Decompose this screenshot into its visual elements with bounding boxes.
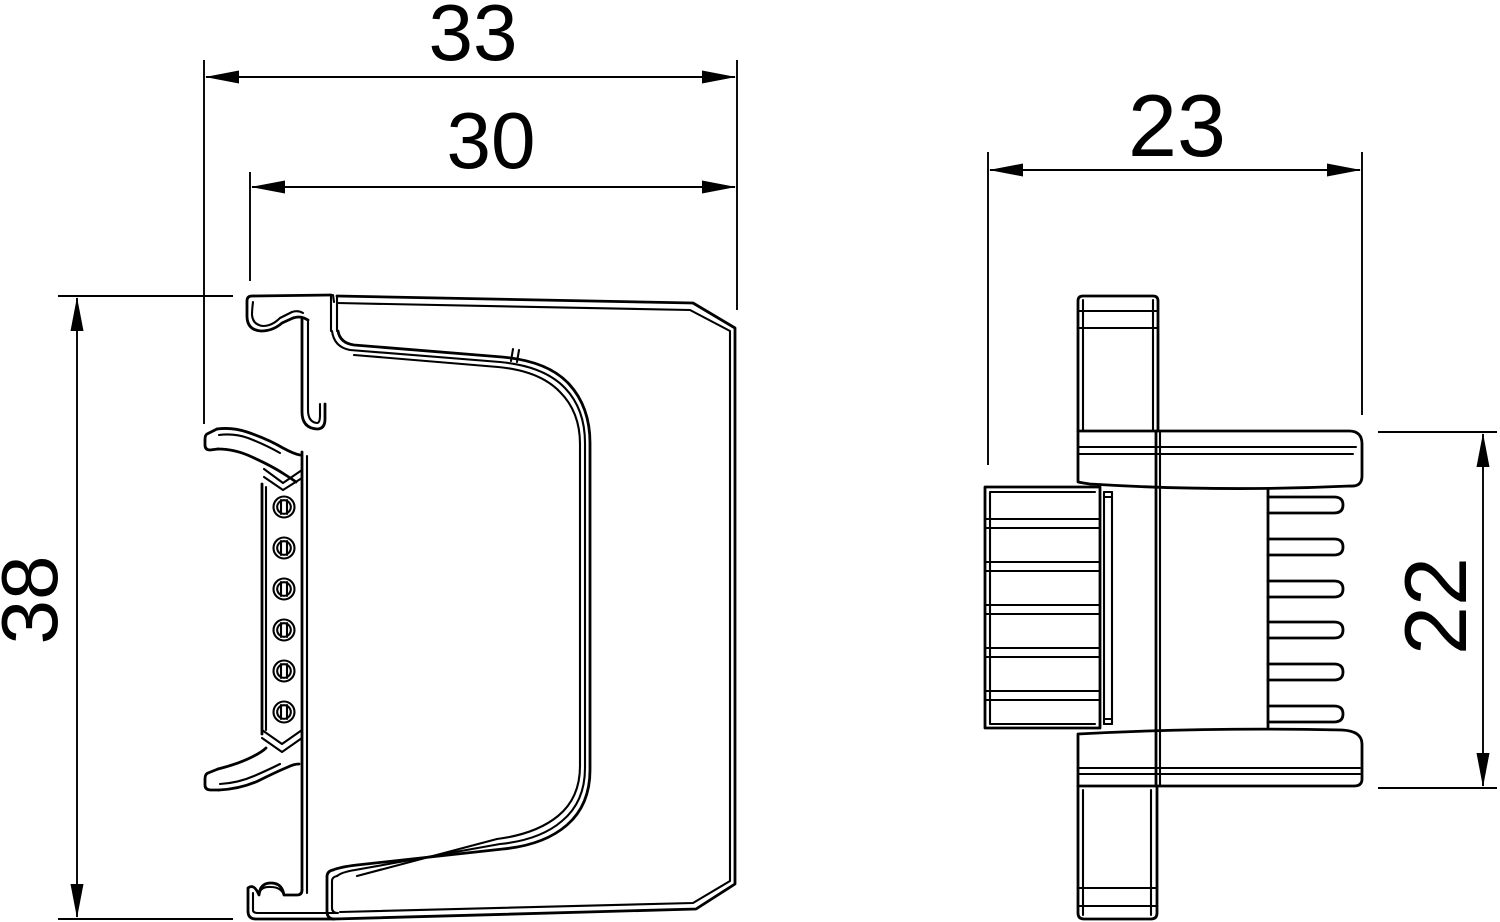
ribbed-block — [985, 487, 1100, 728]
bottom-foot — [248, 883, 336, 919]
dim-side-width: 23 — [988, 76, 1362, 465]
front-outline — [333, 295, 735, 919]
dim-label-inner-width: 30 — [447, 96, 536, 185]
slotted-strip — [262, 452, 307, 893]
slot-hole — [274, 702, 295, 723]
arrow-left-icon — [205, 71, 239, 84]
arrow-right-icon — [702, 71, 736, 84]
lower-flange — [1078, 729, 1362, 786]
technical-drawing: 33 30 38 23 — [0, 0, 1500, 922]
dim-label-overall-width: 33 — [429, 0, 518, 77]
side-view — [985, 296, 1362, 919]
bottom-left-hook — [205, 748, 299, 790]
arrow-left-icon — [251, 181, 285, 194]
dim-side-height: 22 — [1378, 432, 1497, 788]
bottom-post — [1078, 786, 1157, 919]
top-left-hook — [247, 295, 331, 429]
upper-flange — [1078, 431, 1362, 489]
dim-label-side-width: 23 — [1128, 76, 1226, 175]
middle-left-hook — [205, 428, 300, 482]
dim-label-overall-height: 38 — [0, 556, 74, 645]
slot-hole — [274, 538, 295, 559]
dim-inner-width: 30 — [250, 96, 736, 281]
slot-hole — [274, 620, 295, 641]
arrow-up-icon — [71, 297, 84, 331]
dim-overall-height: 38 — [0, 296, 233, 919]
dim-label-side-height: 22 — [1386, 557, 1485, 655]
dimensions: 33 30 38 23 — [0, 0, 1497, 919]
slot-hole — [274, 497, 295, 518]
arrow-up-icon — [1477, 433, 1490, 467]
arrow-right-icon — [702, 181, 736, 194]
arrow-left-icon — [989, 164, 1023, 177]
top-post — [1078, 296, 1158, 431]
bottom-plate-cap — [327, 870, 338, 919]
comb-teeth — [1268, 489, 1343, 727]
arrow-down-icon — [1477, 753, 1490, 787]
inner-contour — [331, 295, 590, 876]
front-view — [205, 295, 735, 919]
slot-hole — [274, 579, 295, 600]
drawing-canvas: 33 30 38 23 — [0, 0, 1500, 922]
arrow-right-icon — [1327, 164, 1361, 177]
slot-hole — [274, 661, 295, 682]
arrow-down-icon — [71, 884, 84, 918]
